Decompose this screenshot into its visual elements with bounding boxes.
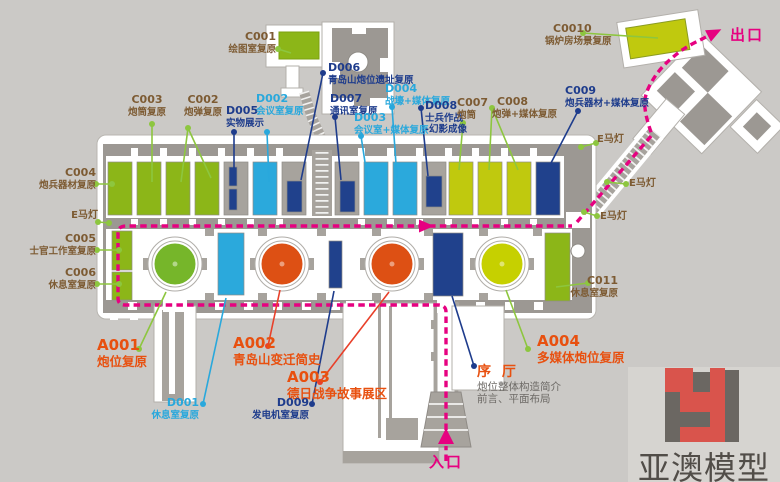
label-c005: C005士官工作室复原 [29, 233, 96, 257]
exit-arrow [705, 23, 724, 41]
label-c006: C006休息室复原 [48, 267, 96, 291]
label-c004: C004炮兵器材复原 [39, 167, 96, 191]
label-c007: C007炮筒 [457, 97, 488, 121]
label-d001: D001休息室复原 [151, 397, 199, 421]
logo: 亚澳模型 [628, 367, 780, 482]
logo-text: 亚澳模型 [628, 443, 780, 482]
label-entrance: 入口 [429, 454, 463, 472]
label-c003: C003炮筒复原 [128, 94, 166, 118]
label-c009: C009炮兵器材+媒体复原 [565, 85, 649, 109]
label-a002: A002青岛山变迁简史 [233, 335, 321, 367]
room-c006 [112, 272, 132, 300]
label-c0010: C0010锅炉房场景复原 [545, 23, 612, 47]
label-exit: 出口 [730, 27, 764, 45]
label-c001: C001绘图室复原 [228, 31, 276, 55]
label-c011: C011休息室复原 [570, 275, 618, 299]
label-d003: D003会议室+媒体复原 [354, 112, 428, 136]
label-a004: A004多媒体炮位复原 [537, 333, 625, 365]
label-lamp-1: E马灯 [597, 134, 624, 146]
label-c002: C002炮弹复原 [184, 94, 222, 118]
label-c008: C008炮弹+媒体复原 [497, 96, 557, 120]
room-c009 [536, 162, 560, 215]
label-xuting: 序 厅 炮位整体构造简介 前言、平面布局 [477, 364, 561, 405]
room-c011 [545, 233, 570, 301]
logo-mark [665, 368, 693, 392]
room-c007 [449, 162, 473, 215]
room-c003 [137, 162, 161, 215]
interior-stairs [312, 150, 332, 216]
room-d003 [364, 162, 388, 215]
room-d009 [329, 241, 342, 288]
floorplan-canvas: C001绘图室复原 C003炮筒复原 C002炮弹复原 C004炮兵器材复原 E… [0, 0, 780, 482]
room-c004 [108, 162, 132, 215]
label-a001: A001炮位复原 [97, 337, 147, 369]
spiral-stair [571, 244, 585, 258]
room-c001 [279, 32, 319, 59]
room-d002 [253, 162, 277, 215]
room-c008b [507, 162, 531, 215]
room-c002a [166, 162, 190, 215]
room-xuting [433, 233, 463, 296]
room-d001 [218, 233, 244, 295]
room-c008a [478, 162, 502, 215]
label-lamp-left: E马灯 [71, 210, 98, 222]
label-lamp-3: E马灯 [600, 211, 627, 223]
label-d002: D002会议室复原 [256, 93, 304, 117]
label-lamp-2: E马灯 [629, 178, 656, 190]
label-d009: D009发电机室复原 [252, 397, 309, 421]
